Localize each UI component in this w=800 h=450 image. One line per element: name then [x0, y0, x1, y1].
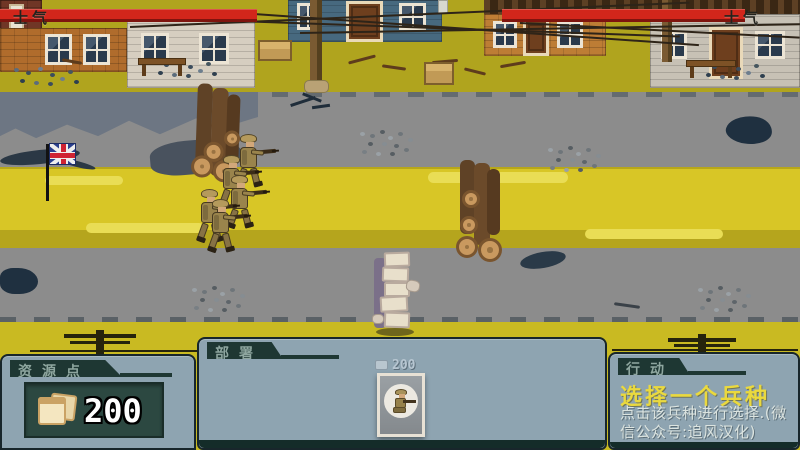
pebble-cluster: [360, 132, 365, 136]
union-jack-flag-icon: [49, 143, 76, 165]
morale-label-player: 士气: [13, 7, 51, 28]
game-screen: 士气 士气 资源点 200 部署 200: [0, 0, 800, 450]
british-soldier: [203, 198, 243, 258]
bread-icon: [38, 397, 66, 425]
grass-highlight: [585, 229, 723, 239]
morale-label-enemy: 士气: [724, 7, 762, 28]
mini-soldier-legs: [393, 407, 406, 413]
pole-base-stone: [304, 80, 329, 93]
unit-card-rifleman[interactable]: [377, 373, 425, 437]
bench: [138, 58, 186, 78]
resources-header-label: 资源点: [18, 361, 90, 381]
bench: [686, 60, 736, 80]
pole-crossbar: [70, 341, 130, 344]
resources-amount: 200: [84, 392, 142, 430]
pebble-cluster: [698, 288, 703, 292]
pebble-cluster: [14, 68, 19, 72]
pebble-cluster: [192, 288, 197, 292]
resources-panel: 资源点 200: [0, 354, 196, 450]
house-orange-brick: [0, 28, 127, 72]
pole-crossbar: [668, 338, 736, 342]
header-underline: [281, 355, 339, 359]
grass-highlight: [86, 223, 204, 233]
unit-cost: 200: [392, 358, 415, 373]
pole-crossbar: [64, 334, 136, 338]
window: [83, 34, 110, 65]
telephone-pole: [310, 0, 322, 92]
deploy-panel: 部署 200: [197, 337, 607, 450]
ground-wire: [30, 350, 200, 352]
mini-soldier-rifle: [403, 400, 416, 403]
action-description: 点击该兵种进行选择.(微信公众号:追风汉化): [620, 404, 796, 442]
sandbag-stack: [372, 250, 418, 336]
bread-icon: [375, 360, 388, 370]
deploy-header-tab: 部署: [207, 342, 283, 359]
header-underline: [120, 373, 172, 377]
morale-bar-enemy: 士气: [502, 9, 745, 22]
resources-display-box: 200: [24, 382, 164, 438]
pebble-cluster: [548, 148, 553, 152]
action-header-tab: 行动: [618, 358, 690, 375]
tar-stain: [0, 268, 38, 294]
wooden-crate: [258, 40, 292, 61]
window: [493, 21, 517, 48]
morale-bar-player: 士气: [0, 9, 257, 22]
resources-header-tab: 资源点: [10, 360, 122, 377]
window: [199, 33, 229, 64]
action-header-label: 行动: [626, 359, 674, 379]
deploy-header-label: 部署: [215, 343, 263, 363]
log-pile-right: [452, 160, 504, 264]
ground-wire: [612, 349, 798, 351]
pole-crossbar: [674, 344, 730, 347]
unit-emblem: [384, 384, 418, 418]
header-underline: [688, 371, 746, 375]
wooden-crate: [424, 62, 454, 85]
unit-cost-row: 200: [375, 358, 435, 371]
deploy-panel-footer: [199, 440, 605, 448]
action-panel: 行动 选择一个兵种 点击该兵种进行选择.(微信公众号:追风汉化): [608, 352, 800, 450]
action-panel-footer: [610, 442, 798, 448]
grass-highlight: [45, 176, 123, 185]
